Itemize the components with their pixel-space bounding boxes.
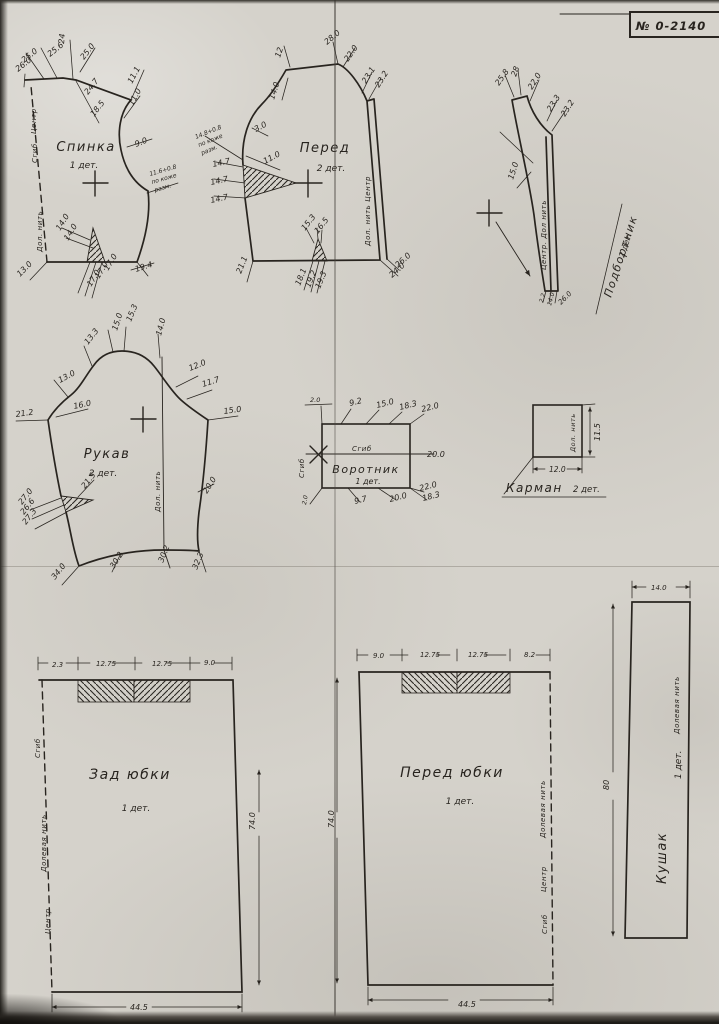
measurement-label: 12.0 xyxy=(549,465,566,474)
vorotnik-qty: 1 дет. xyxy=(355,477,380,486)
edge-text-label: Центр xyxy=(44,908,52,934)
spinka-qty: 1 дет. xyxy=(70,161,98,171)
measurement-label: 18.5 xyxy=(88,99,106,119)
edge-text-label: Дол. нить xyxy=(36,211,44,253)
piece-spinka: Спинка 1 дет. 25.026.025.62425.024.718.5… xyxy=(14,33,178,298)
measurement-label: 30.2 xyxy=(157,544,172,564)
measurement-label: 13.0 xyxy=(57,368,77,384)
measurement-label: 22.0 xyxy=(420,401,439,414)
grain-cross xyxy=(294,170,322,197)
stamp-block: № 0-2140 xyxy=(560,12,719,37)
kushak-label: Кушак xyxy=(655,832,670,884)
measurement-label: 20.0 xyxy=(388,491,407,504)
measurement-label: 11.5 xyxy=(593,423,602,441)
measurement-label: 74.0 xyxy=(327,810,336,828)
measurement-label: 23.3 xyxy=(545,93,562,113)
rukav-measurements: 21.216.013.013.315.015.314.012.011.715.0… xyxy=(15,303,242,581)
measurement-label: 9.2 xyxy=(348,396,363,408)
measurement-label: 11.0 xyxy=(262,149,282,165)
measurement-label: 21.2 xyxy=(15,408,34,419)
edge-text-label: Долевая нить xyxy=(673,676,681,735)
kushak-qty: 1 дет. xyxy=(674,751,684,779)
edge-text-label: Сгиб xyxy=(352,445,372,453)
measurement-label: 3.0 xyxy=(253,120,268,134)
pered-bust-dart xyxy=(243,165,296,198)
edge-text-label: Центр xyxy=(30,108,38,134)
piece-kushak: Кушак 1 дет. 14.080Долевая нить xyxy=(602,581,690,938)
measurement-label: 12.75 xyxy=(468,651,489,659)
rukav-label: Рукав xyxy=(84,447,131,462)
measurement-label: 12.0 xyxy=(187,358,207,373)
grain-cross xyxy=(477,200,502,226)
measurement-label: 26.0 xyxy=(557,289,574,306)
measurement-label: 14.0 xyxy=(154,317,167,337)
spinka-leader-lines xyxy=(24,40,178,280)
piece-pered-yubki: Перед юбки 1 дет. 9.012.7512.758.274.044… xyxy=(327,649,553,1009)
spinka-dart xyxy=(87,228,105,262)
measurement-label: 2.0 xyxy=(301,495,310,506)
measurement-label: 12.75 xyxy=(96,660,117,668)
pered-yubki-dart-shading-left xyxy=(402,672,457,693)
measurement-label: 14.0 xyxy=(651,584,667,592)
measurement-label: 21.1 xyxy=(235,255,250,275)
piece-rukav: Рукав 2 дет. 21.216.013.013.315.015.314.… xyxy=(15,303,242,585)
measurement-label: 9.0 xyxy=(204,659,216,667)
pered-yubki-fold-line xyxy=(550,672,553,985)
measurement-label: 14.7 xyxy=(212,156,232,169)
kushak-measurements: 14.080Долевая нить xyxy=(602,584,681,790)
measurement-label: 15.0 xyxy=(223,405,242,416)
zad-yubki-dart-shading-right xyxy=(134,680,190,702)
measurement-label: 14.7 xyxy=(210,192,230,205)
piece-vorotnik: Воротник 1 дет. 2.09.215.018.322.0Сгиб20… xyxy=(298,396,445,506)
pered-yubki-label: Перед юбки xyxy=(400,765,504,781)
measurement-label: 12.75 xyxy=(152,660,173,668)
measurement-label: 44.5 xyxy=(130,1003,148,1012)
measurement-label: 28.0 xyxy=(323,28,342,46)
measurement-label: 34.0 xyxy=(49,562,67,582)
measurement-label: 14.7 xyxy=(210,174,230,187)
pered-label: Перед xyxy=(300,141,351,156)
measurement-label: 74.0 xyxy=(248,812,257,830)
measurement-label: 24.7 xyxy=(82,76,101,96)
pered-yubki-outline xyxy=(359,672,553,985)
measurement-label: 20.0 xyxy=(427,450,445,459)
measurement-label: 9.0 xyxy=(373,652,385,660)
pered-yubki-qty: 1 дет. xyxy=(446,797,474,807)
piece-pered: Перед 2 дет. 28.022.01214.03.011.023.123… xyxy=(194,28,412,293)
edge-text-label: Дол. нить Центр xyxy=(364,176,372,247)
piece-zad-yubki: Зад юбки 1 дет. 2.312.7512.759.074.044.5… xyxy=(34,657,259,1012)
measurement-label: 22.0 xyxy=(342,43,360,63)
measurement-label: 8.2 xyxy=(524,651,536,659)
measurement-label: 18.3 xyxy=(398,399,417,412)
measurement-label: 15.3 xyxy=(125,303,140,323)
edge-text-label: Сгиб xyxy=(31,143,39,163)
measurement-label: 23.2 xyxy=(559,98,576,118)
edge-text-label: Дол. нить xyxy=(569,413,577,453)
measurement-label: 15.0 xyxy=(110,312,124,332)
edge-text-label: Сгиб xyxy=(298,458,306,478)
rukav-grain-line xyxy=(162,357,170,568)
zad-yubki-label: Зад юбки xyxy=(89,767,171,783)
fold-cross-mark xyxy=(310,446,327,463)
measurement-label: 28 xyxy=(509,65,521,78)
measurement-label: 11.1 xyxy=(126,65,142,85)
vorotnik-label: Воротник xyxy=(332,463,399,476)
edge-text-label: Долевая нить xyxy=(539,780,547,839)
measurement-label: 25.0 xyxy=(78,42,96,62)
zad-yubki-measurements: 2.312.7512.759.074.044.5СгибДолевая нить… xyxy=(34,659,257,1012)
measurement-label: 11.0 xyxy=(127,87,143,107)
grain-cross xyxy=(83,171,108,196)
pered-yubki-top-dim xyxy=(357,649,550,661)
measurement-label: 22.0 xyxy=(526,71,543,91)
zad-yubki-top-dim xyxy=(38,657,232,670)
pered-waist-dart xyxy=(312,239,327,261)
measurement-label: 2.3 xyxy=(52,661,63,669)
measurement-label: 13.0 xyxy=(15,259,34,278)
grain-cross xyxy=(131,407,156,432)
measurement-label: 44.5 xyxy=(458,1000,476,1009)
measurement-label: 2.0 xyxy=(310,396,320,404)
edge-text-label: Долевая нить xyxy=(40,814,48,873)
podbortnik-arrow xyxy=(496,222,530,276)
piece-podbortnik: Подбортник 2 дет. 25.82822.023.323.215.0… xyxy=(477,65,640,314)
measurement-label: 15.0 xyxy=(506,161,520,181)
measurement-label: 9.7 xyxy=(353,494,368,506)
measurement-label: 12 xyxy=(273,46,285,58)
pattern-sheet: № 0-2140 Спинка 1 дет. 25.026.025.62425.… xyxy=(0,0,719,1024)
edge-text-label: Дол. нить xyxy=(154,471,162,513)
measurement-label: 11.7 xyxy=(201,375,222,389)
measurement-label: 32.3 xyxy=(191,551,206,571)
karman-qty: 2 дет. xyxy=(573,485,600,495)
measurement-label: 14.0 xyxy=(267,81,281,101)
measurement-label: 12.75 xyxy=(420,651,441,659)
measurement-label: 9.0 xyxy=(133,136,148,149)
measurement-label: 80 xyxy=(602,780,611,790)
karman-measurements: Дол. нить11.512.0 xyxy=(549,413,602,474)
pered-yubki-dart-shading-right xyxy=(457,672,510,693)
pattern-number: № 0-2140 xyxy=(635,19,707,33)
measurement-label: 13.3 xyxy=(82,327,100,347)
zad-yubki-outline xyxy=(39,680,242,992)
pered-qty: 2 дет. xyxy=(317,164,345,174)
piece-karman: Карман 2 дет. Дол. нить11.512.0 xyxy=(502,404,606,497)
edge-text-label: Сгиб xyxy=(34,738,42,758)
spinka-label: Спинка xyxy=(56,140,115,155)
zad-yubki-dart-shading-left xyxy=(78,680,134,702)
pattern-sheet-drawing: № 0-2140 Спинка 1 дет. 25.026.025.62425.… xyxy=(0,0,719,1024)
edge-text-label: Центр xyxy=(540,866,548,892)
podbortnik-leader-lines xyxy=(500,70,622,314)
measurement-label: 14.0 xyxy=(546,292,556,307)
zad-yubki-qty: 1 дет. xyxy=(122,804,150,814)
karman-label: Карман xyxy=(506,481,563,495)
measurement-label: 16.0 xyxy=(73,398,92,411)
karman-dim-ticks xyxy=(533,404,595,473)
edge-text-label: Центр. Дол нить xyxy=(540,200,548,270)
edge-text-label: Сгиб xyxy=(541,914,549,934)
podbortnik-measurements: 25.82822.023.323.215.0Центр. Дол нить2.2… xyxy=(493,65,576,306)
measurement-label: 24 xyxy=(57,33,67,44)
measurement-label: 15.0 xyxy=(375,397,394,410)
podbortnik-outline xyxy=(512,96,558,291)
vorotnik-measurements: 2.09.215.018.322.0Сгиб20.0Сгиб2.09.720.0… xyxy=(298,396,445,506)
rukav-dart xyxy=(61,496,93,512)
measurement-label: 25.8 xyxy=(493,67,511,87)
